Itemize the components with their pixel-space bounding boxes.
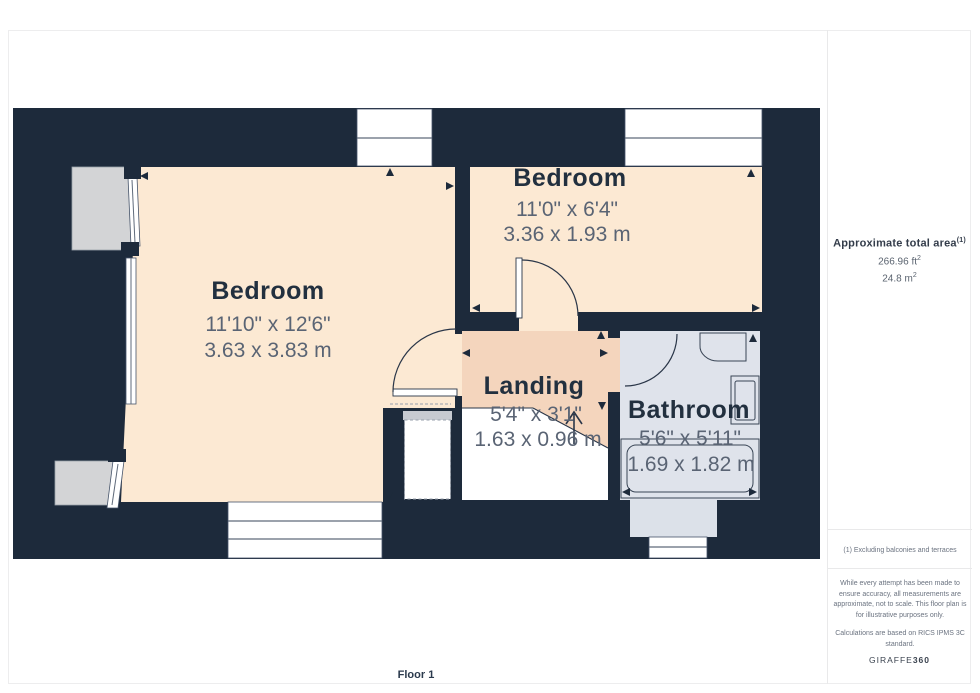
sidebar-footnote: (1) Excluding balconies and terraces [830, 546, 970, 557]
sidebar-disclaimer: While every attempt has been made to ens… [832, 579, 968, 621]
cupboard [403, 411, 452, 499]
total-area-footnote-marker: (1) [957, 237, 966, 244]
window-bottom [228, 502, 382, 558]
total-area-ft-value: 266.96 ft [878, 256, 917, 267]
bathroom-imperial: 5'6" x 5'11" [639, 427, 741, 450]
door-gap-bathroom [607, 338, 621, 392]
bedroom-2-name: Bedroom [513, 164, 626, 192]
chimney-top-left [72, 167, 137, 250]
window-top-left [357, 109, 432, 166]
door-gap-bedroom2 [519, 311, 578, 332]
total-area-m-value: 24.8 m [882, 273, 913, 284]
chimney-bottom-left [55, 461, 117, 505]
window-left-lower [126, 258, 136, 404]
brand-logo: GIRAFFE360 [827, 655, 972, 665]
total-area-m: 24.8 m2 [827, 272, 972, 284]
total-area-ft: 266.96 ft2 [827, 255, 972, 267]
window-bay [649, 537, 707, 558]
ft-superscript: 2 [917, 255, 921, 262]
bedroom-2-metric: 3.36 x 1.93 m [503, 223, 630, 246]
bathroom-bay [630, 500, 717, 537]
bathroom-name: Bathroom [628, 396, 750, 424]
window-top-right [625, 109, 762, 166]
bedroom-1-metric: 3.63 x 3.83 m [204, 339, 331, 362]
total-area-label: Approximate total area(1) [827, 237, 972, 250]
total-area-label-text: Approximate total area [833, 238, 957, 250]
total-area-block: Approximate total area(1) 266.96 ft2 24.… [827, 237, 972, 284]
bathroom-metric: 1.69 x 1.82 m [627, 453, 754, 476]
landing-metric: 1.63 x 0.96 m [474, 428, 601, 451]
brand-suffix: 360 [913, 655, 930, 665]
bedroom-2-imperial: 11'0" x 6'4" [516, 198, 618, 221]
sidebar-divider-line-1 [827, 529, 972, 530]
brand-name: GIRAFFE [869, 655, 913, 665]
floor-label: Floor 1 [358, 669, 474, 681]
landing-imperial: 5'4" x 3'1" [490, 403, 582, 426]
sidebar-divider-line-2 [827, 568, 972, 569]
bedroom-1-name: Bedroom [211, 277, 324, 305]
sidebar-standard: Calculations are based on RICS IPMS 3C s… [832, 629, 968, 650]
landing-name: Landing [484, 372, 585, 400]
door-gap-bedroom1 [451, 334, 463, 396]
bedroom-1-imperial: 11'10" x 12'6" [205, 313, 330, 336]
m-superscript: 2 [913, 272, 917, 279]
sidebar-divider [827, 30, 828, 684]
